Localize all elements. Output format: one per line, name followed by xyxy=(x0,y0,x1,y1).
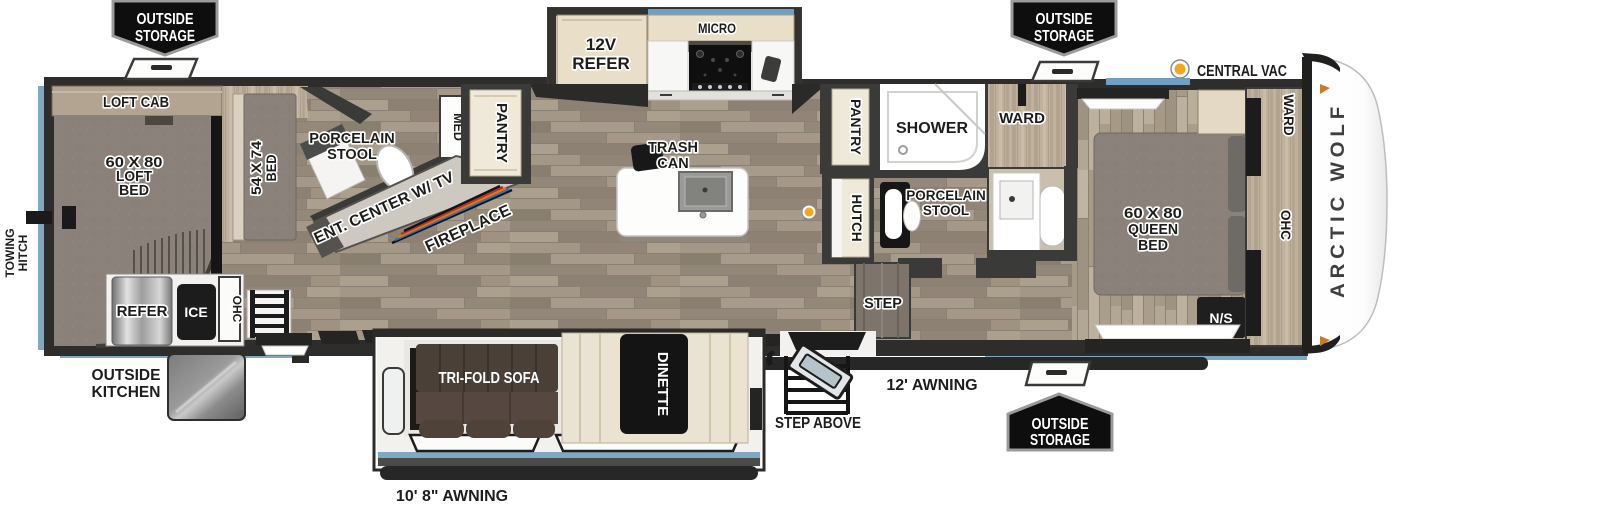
svg-text:STOOL: STOOL xyxy=(327,147,377,163)
svg-text:OUTSIDE: OUTSIDE xyxy=(92,367,161,384)
svg-text:STEP: STEP xyxy=(864,296,902,312)
svg-text:12' AWNING: 12' AWNING xyxy=(886,377,977,394)
svg-text:OHC: OHC xyxy=(1278,210,1293,240)
svg-text:HITCH: HITCH xyxy=(16,235,30,272)
svg-text:12V: 12V xyxy=(586,35,617,54)
svg-text:N/S: N/S xyxy=(1209,310,1232,326)
svg-text:STEP ABOVE: STEP ABOVE xyxy=(775,415,861,432)
svg-text:60 X 80: 60 X 80 xyxy=(1124,205,1182,222)
svg-text:PANTRY: PANTRY xyxy=(493,103,510,163)
svg-text:ICE: ICE xyxy=(184,304,207,320)
svg-text:ARCTIC WOLF: ARCTIC WOLF xyxy=(1328,102,1349,298)
svg-text:54 X 74: 54 X 74 xyxy=(248,141,264,195)
svg-text:PORCELAIN: PORCELAIN xyxy=(906,188,986,203)
svg-text:QUEEN: QUEEN xyxy=(1128,221,1178,238)
svg-text:BED: BED xyxy=(1138,237,1168,254)
svg-text:REFER: REFER xyxy=(117,303,168,320)
svg-text:REFER: REFER xyxy=(572,54,630,73)
svg-text:WARD: WARD xyxy=(999,110,1045,127)
svg-text:TOWING: TOWING xyxy=(3,228,17,277)
svg-text:PANTRY: PANTRY xyxy=(848,99,864,156)
svg-text:MICRO: MICRO xyxy=(698,20,736,36)
svg-text:CAN: CAN xyxy=(657,156,688,172)
svg-text:STORAGE: STORAGE xyxy=(1034,28,1094,45)
svg-text:LOFT CAB: LOFT CAB xyxy=(103,94,169,111)
svg-text:TRI-FOLD SOFA: TRI-FOLD SOFA xyxy=(439,370,540,387)
svg-text:OHC: OHC xyxy=(230,296,244,323)
svg-text:OUTSIDE: OUTSIDE xyxy=(137,11,194,28)
svg-text:BED: BED xyxy=(119,182,149,199)
svg-text:STORAGE: STORAGE xyxy=(135,28,195,45)
svg-text:BED: BED xyxy=(263,155,279,182)
svg-text:HUTCH: HUTCH xyxy=(849,194,864,241)
svg-text:DINETTE: DINETTE xyxy=(654,352,671,416)
svg-text:STORAGE: STORAGE xyxy=(1030,432,1090,449)
svg-text:KITCHEN: KITCHEN xyxy=(92,384,161,401)
svg-text:SHOWER: SHOWER xyxy=(896,120,968,137)
svg-text:PORCELAIN: PORCELAIN xyxy=(309,131,394,147)
svg-text:WARD: WARD xyxy=(1281,94,1296,135)
svg-text:OUTSIDE: OUTSIDE xyxy=(1032,416,1089,433)
svg-text:CENTRAL VAC: CENTRAL VAC xyxy=(1197,63,1287,80)
svg-text:TRASH: TRASH xyxy=(648,140,698,156)
svg-text:OUTSIDE: OUTSIDE xyxy=(1036,11,1093,28)
svg-text:STOOL: STOOL xyxy=(923,203,969,218)
svg-text:10' 8" AWNING: 10' 8" AWNING xyxy=(396,488,508,505)
